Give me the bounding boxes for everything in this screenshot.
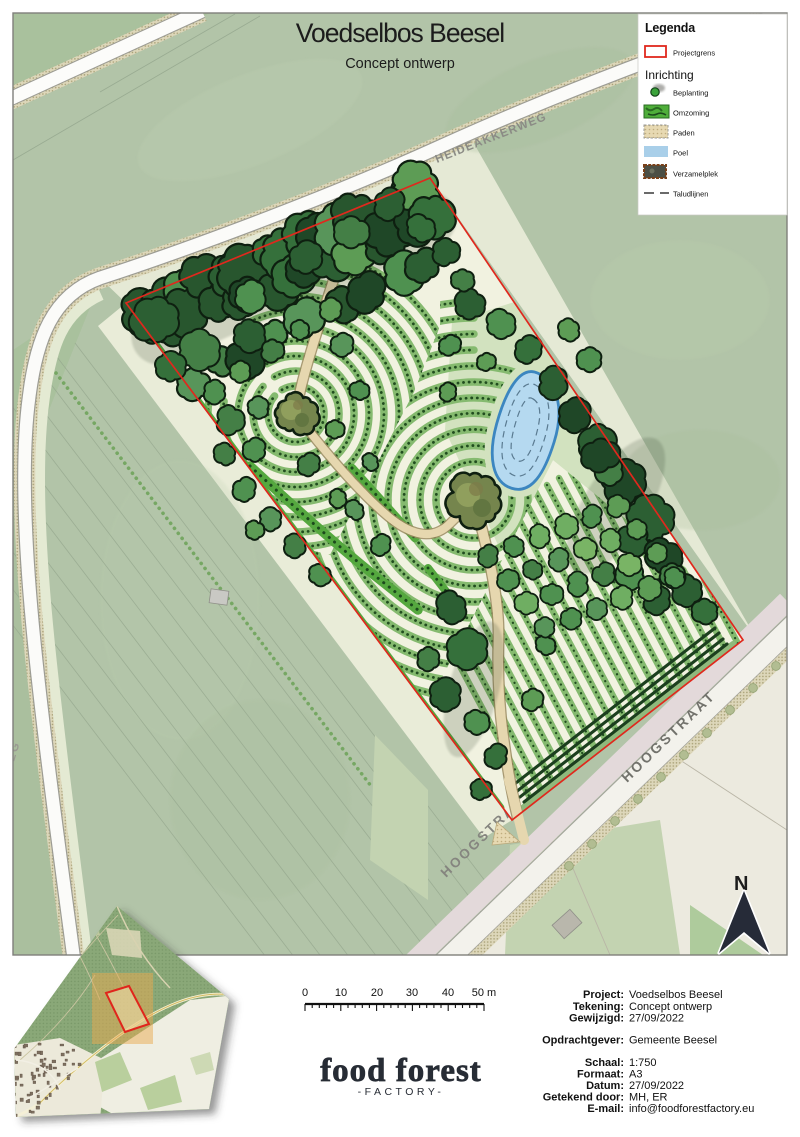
- svg-text:27/09/2022: 27/09/2022: [629, 1013, 684, 1025]
- svg-text:-FACTORY-: -FACTORY-: [358, 1086, 445, 1098]
- svg-text:Concept ontwerp: Concept ontwerp: [345, 56, 455, 72]
- svg-text:Concept ontwerp: Concept ontwerp: [629, 1001, 712, 1013]
- svg-text:40: 40: [442, 987, 454, 999]
- svg-text:30: 30: [406, 987, 418, 999]
- svg-text:N: N: [734, 873, 748, 895]
- svg-text:10: 10: [335, 987, 347, 999]
- svg-text:1:750: 1:750: [629, 1057, 657, 1069]
- svg-text:E-mail:: E-mail:: [587, 1103, 624, 1115]
- svg-text:Tekening:: Tekening:: [573, 1001, 624, 1013]
- svg-text:Opdrachtgever:: Opdrachtgever:: [542, 1035, 624, 1047]
- svg-text:Getekend door:: Getekend door:: [543, 1092, 624, 1104]
- svg-text:Beplanting: Beplanting: [673, 89, 708, 98]
- svg-text:info@foodforestfactory.eu: info@foodforestfactory.eu: [629, 1103, 754, 1115]
- svg-text:food forest: food forest: [320, 1053, 482, 1089]
- svg-text:Poel: Poel: [673, 149, 688, 158]
- svg-text:Datum:: Datum:: [586, 1080, 624, 1092]
- svg-text:Voedselbos Beesel: Voedselbos Beesel: [629, 989, 723, 1001]
- svg-text:A3: A3: [629, 1069, 642, 1081]
- svg-text:Omzoming: Omzoming: [673, 109, 709, 118]
- svg-text:20: 20: [371, 987, 383, 999]
- svg-text:Voedselbos Beesel: Voedselbos Beesel: [296, 18, 505, 48]
- svg-text:Paden: Paden: [673, 129, 695, 138]
- svg-text:0: 0: [302, 987, 308, 999]
- svg-text:Taludlijnen: Taludlijnen: [673, 190, 708, 199]
- svg-text:Gemeente Beesel: Gemeente Beesel: [629, 1035, 717, 1047]
- svg-text:Legenda: Legenda: [645, 21, 696, 35]
- svg-text:27/09/2022: 27/09/2022: [629, 1080, 684, 1092]
- svg-text:Project:: Project:: [583, 989, 624, 1001]
- svg-text:Verzamelplek: Verzamelplek: [673, 170, 718, 179]
- svg-text:50 m: 50 m: [472, 987, 496, 999]
- svg-text:Projectgrens: Projectgrens: [673, 49, 715, 58]
- svg-text:Formaat:: Formaat:: [577, 1069, 624, 1081]
- svg-text:MH, ER: MH, ER: [629, 1092, 668, 1104]
- svg-text:Gewijzigd:: Gewijzigd:: [569, 1013, 624, 1025]
- svg-text:Inrichting: Inrichting: [645, 68, 694, 82]
- svg-text:Schaal:: Schaal:: [585, 1057, 624, 1069]
